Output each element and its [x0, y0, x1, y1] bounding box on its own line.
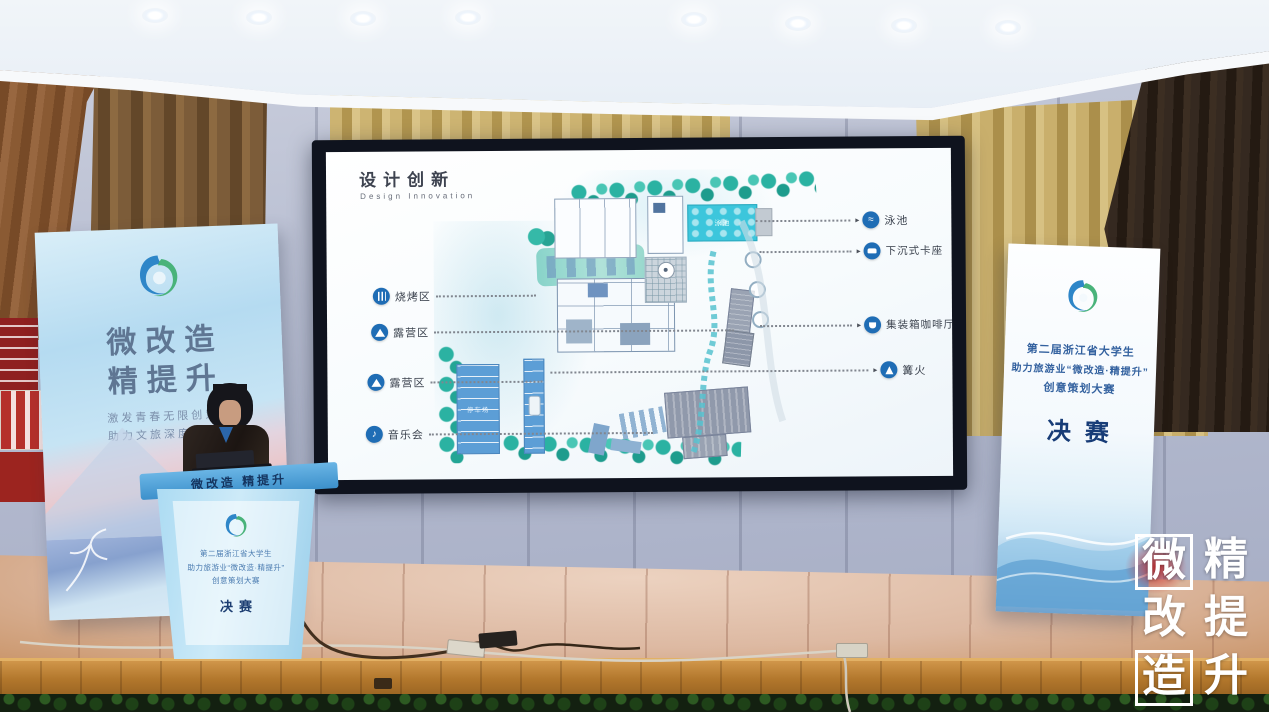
ceiling-light: [246, 10, 272, 25]
tent-icon: [367, 374, 384, 391]
arrow-icon: ▸: [855, 215, 859, 224]
watermark-char: 精: [1197, 534, 1255, 590]
watermark-char: 升: [1197, 650, 1255, 706]
leader-line: [436, 294, 536, 297]
callout-label: 烧烤区: [395, 288, 431, 304]
stage-vent: [374, 678, 392, 689]
grill-icon: [373, 288, 390, 305]
ceiling-light: [142, 8, 168, 23]
swim-icon: ≈: [862, 211, 879, 228]
podium: 第二届浙江省大学生 助力旅游业“微改造·精提升” 创意策划大赛 决赛: [150, 489, 322, 659]
callout-label: 露营区: [389, 374, 425, 390]
podium-band-text: 微改造 精提升: [190, 470, 287, 493]
banner-final-label: 决赛: [1001, 409, 1154, 449]
watermark-char: 提: [1197, 592, 1255, 648]
banner-line1: 第二届浙江省大学生: [1005, 339, 1157, 360]
callout-bbq: 烧烤区: [373, 287, 541, 305]
music-icon: ♪: [366, 426, 383, 443]
callout-bonfire: ▸ 篝火: [545, 361, 926, 381]
ceiling-light: [681, 12, 707, 27]
callout-container-cafe: ▸ 集装箱咖啡厅: [755, 316, 953, 334]
leader-line: [760, 324, 852, 327]
leader-line: [429, 431, 653, 435]
callout-camp-2: 露营区: [367, 373, 547, 391]
callout-sunken-seating: ▸ 下沉式卡座: [755, 242, 944, 260]
leader-line: [434, 329, 734, 333]
leader-line: [755, 219, 850, 222]
brand-logo-swirl-icon: [1061, 275, 1105, 323]
leader-line: [430, 380, 542, 383]
callout-pool: ▸ ≈ 泳池: [750, 211, 908, 229]
podium-line2: 助力旅游业“微改造·精提升”: [170, 561, 302, 575]
slide: 设计创新 Design Innovation 泳池: [326, 148, 953, 480]
ceiling-light: [891, 18, 917, 33]
arrow-icon: ▸: [857, 320, 861, 329]
watermark-char: 微: [1135, 534, 1193, 590]
podium-final-label: 决赛: [170, 596, 302, 615]
watermark-logo: 微 精 改 提 造 升: [1135, 534, 1255, 706]
callout-label: 露营区: [393, 324, 429, 340]
watermark-char: 改: [1135, 592, 1193, 648]
fire-icon: [880, 361, 897, 378]
speaker-head: [207, 383, 253, 429]
callout-label: 下沉式卡座: [886, 243, 944, 258]
arrow-icon: ▸: [873, 365, 877, 374]
watermark-char: 造: [1135, 650, 1193, 706]
brand-logo-swirl-icon: [130, 249, 186, 310]
podium-front-panel: 第二届浙江省大学生 助力旅游业“微改造·精提升” 创意策划大赛 决赛: [170, 501, 302, 645]
plants-row: [0, 694, 1269, 712]
callout-camp-1: 露营区: [371, 321, 739, 341]
callout-label: 篝火: [902, 361, 926, 377]
led-screen: 设计创新 Design Innovation 泳池: [312, 136, 967, 495]
leader-line: [550, 369, 868, 373]
power-strip: [836, 643, 868, 658]
coffee-icon: [864, 316, 881, 333]
ceiling-light: [785, 16, 811, 31]
arrow-icon: ▸: [857, 246, 861, 255]
leader-line: [760, 250, 852, 253]
speaker-face: [219, 400, 241, 426]
podium-line3: 创意策划大赛: [170, 574, 302, 588]
banner-line3: 创意策划大赛: [1003, 377, 1155, 398]
ceiling-light: [350, 11, 376, 26]
seat-icon: [864, 242, 881, 259]
branch-graphic: [54, 522, 149, 602]
speaker-fringe: [213, 384, 247, 400]
tent-icon: [371, 324, 388, 341]
callout-label: 泳池: [884, 212, 908, 228]
podium-logo-swirl-icon: [221, 511, 251, 546]
ceiling-light: [995, 20, 1021, 35]
ceiling-light: [455, 10, 481, 25]
callout-concert: ♪ 音乐会: [366, 424, 658, 443]
stage-photo: 设计创新 Design Innovation 泳池: [0, 0, 1269, 712]
banner-line2: 助力旅游业“微改造·精提升”: [1004, 358, 1156, 378]
podium-line1: 第二届浙江省大学生: [170, 547, 302, 561]
callout-label: 集装箱咖啡厅: [886, 317, 953, 332]
callout-label: 音乐会: [388, 426, 424, 442]
